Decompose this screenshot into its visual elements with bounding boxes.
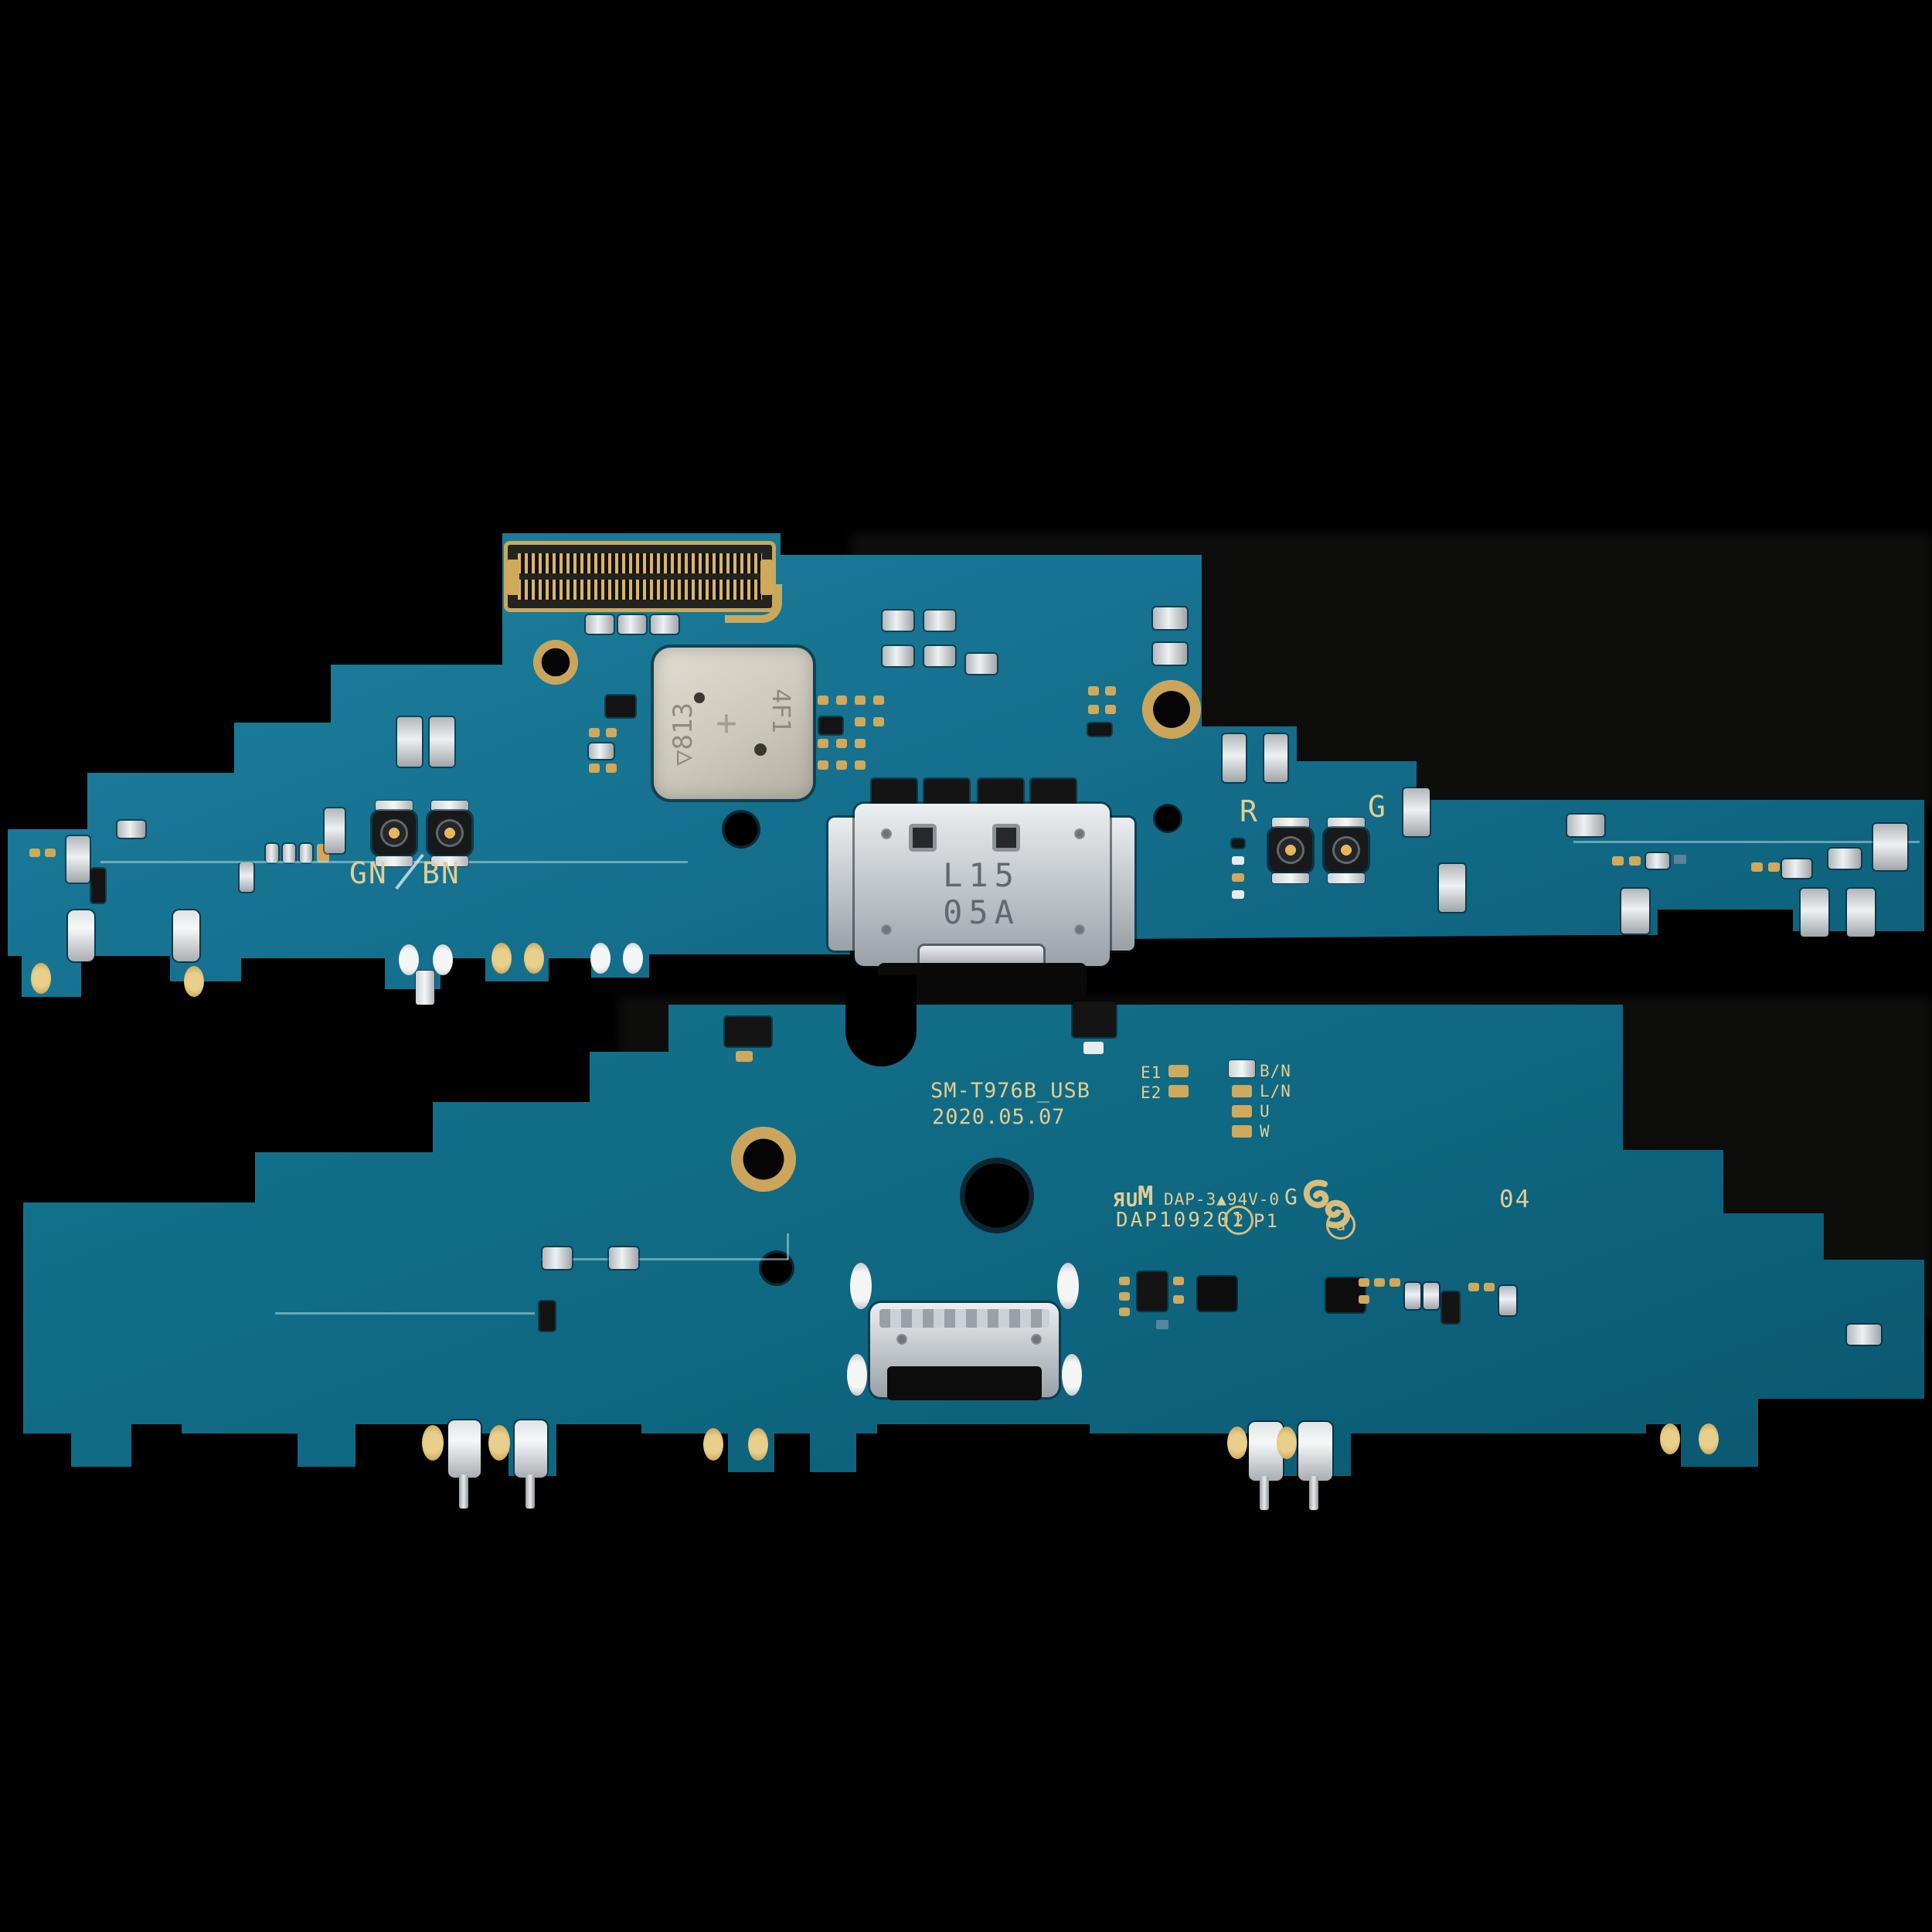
smd-resistor [1156, 1320, 1168, 1329]
edge-pad [623, 943, 643, 974]
smd-capacitor [609, 1247, 638, 1269]
solder-pad [818, 696, 828, 705]
smd-capacitor [117, 821, 145, 838]
connector-end-tab [507, 560, 519, 595]
edge-plated-pad [488, 1425, 510, 1461]
smd-capacitor [1264, 734, 1287, 782]
edge-contact [68, 910, 94, 961]
solder-pad [589, 728, 600, 737]
usb-pin-block [978, 779, 1023, 807]
test-pad [1168, 1065, 1189, 1077]
circled-2-mark: 2 [1224, 1206, 1253, 1235]
smd-capacitor [1621, 889, 1649, 934]
test-pad [1232, 1105, 1252, 1117]
solder-pad [1088, 686, 1099, 696]
smd-capacitor [430, 717, 454, 767]
smd-capacitor [883, 646, 913, 666]
usb-rivet [1074, 828, 1085, 839]
smd-ic [1442, 1292, 1459, 1323]
usb-rivet [881, 924, 892, 935]
alignment-hole [759, 1250, 794, 1286]
edge-contact [416, 971, 434, 1005]
solder-pad [818, 760, 828, 770]
smd-capacitor [966, 654, 997, 674]
contact-pin [1260, 1476, 1269, 1510]
panel-number: 04 [1499, 1185, 1531, 1213]
test-pad-dash [1232, 839, 1244, 848]
solder-pad [1484, 1283, 1495, 1291]
solder-pad [1359, 1295, 1369, 1304]
solder-pad [873, 696, 884, 705]
edge-plated-pad [31, 963, 51, 994]
solder-pad [1088, 705, 1099, 714]
edge-pad [433, 944, 453, 975]
solder-pad [855, 739, 866, 748]
usb-rivet [1074, 924, 1085, 935]
coax-clip [1272, 818, 1309, 828]
testpoint-label-ln: L/N [1260, 1082, 1291, 1100]
solder-pad [836, 696, 847, 705]
solder-pad [1751, 862, 1763, 872]
smd-capacitor [1153, 607, 1187, 629]
cert-rev: P1 [1253, 1210, 1279, 1232]
smd-capacitor [1403, 788, 1430, 836]
test-pad [1168, 1085, 1189, 1097]
test-pad-dash [1232, 873, 1244, 882]
screw-hole [1142, 680, 1201, 739]
smd-capacitor [66, 836, 90, 883]
smd-capacitor [1405, 1283, 1420, 1309]
smd-ic [1073, 1002, 1116, 1037]
smd-capacitor [1439, 864, 1465, 912]
solder-pad [1105, 686, 1116, 696]
testpoint-label-e1: E1 [1141, 1063, 1162, 1082]
test-pad-dash [1232, 856, 1244, 865]
contact-pin [526, 1475, 535, 1509]
smd-capacitor [1828, 849, 1861, 869]
smd-capacitor [1847, 889, 1875, 937]
solder-pad [873, 717, 884, 726]
solder-pad [1083, 1042, 1104, 1054]
smd-capacitor [1847, 1325, 1881, 1345]
testpoint-label-e2: E2 [1141, 1083, 1162, 1102]
smd-capacitor [543, 1247, 572, 1269]
antenna-label-g: G [1368, 790, 1387, 824]
edge-plated-pad [1227, 1427, 1247, 1459]
test-pad-dash [1232, 890, 1244, 899]
circled-a-mark: a [1326, 1210, 1355, 1240]
smd-capacitor [397, 717, 422, 767]
usb-pin-block [872, 779, 917, 807]
smd-ic [725, 1017, 771, 1046]
silkscreen-date: 2020.05.07 [932, 1105, 1066, 1129]
rubber-pad [1198, 1277, 1236, 1311]
usb-pin-block [924, 779, 969, 807]
smd-capacitor [883, 611, 913, 631]
solder-pad [1119, 1308, 1130, 1316]
gold-trace [725, 584, 782, 623]
antenna-label-bn: BN [422, 856, 461, 890]
solder-pad [1105, 705, 1116, 714]
smd-capacitor [1153, 643, 1187, 665]
edge-plated-pad [524, 943, 544, 974]
smd-capacitor [651, 615, 679, 634]
edge-plated-pad [492, 943, 512, 974]
shield-marking-center: + [708, 702, 745, 739]
solder-pad [1612, 856, 1624, 866]
coax-connector-bn [428, 811, 471, 855]
contact-pin [1309, 1476, 1318, 1510]
smd-resistor [300, 844, 312, 862]
usb-through-leg [847, 1354, 867, 1396]
solder-pad [818, 739, 828, 748]
soldered-component [1229, 1060, 1255, 1077]
silkscreen-model: SM-T976B_USB [930, 1079, 1090, 1103]
large-hole [960, 1158, 1034, 1233]
solder-pad [736, 1051, 753, 1062]
circuit-trace [541, 1258, 788, 1260]
smd-capacitor [1782, 859, 1811, 878]
smd-capacitor [1499, 1286, 1516, 1315]
smd-capacitor [589, 743, 614, 759]
coax-clip [1328, 873, 1365, 883]
shield-marking-left: ▽813 [668, 680, 696, 788]
manufacturer-logo-m: M [1138, 1181, 1153, 1212]
solder-pad [45, 849, 56, 857]
screw-hole [533, 640, 578, 685]
antenna-label-gn: GN [349, 856, 388, 890]
solder-pad [29, 849, 40, 857]
solder-pad [1768, 862, 1780, 872]
smd-ic [606, 696, 635, 717]
solder-pad [1173, 1277, 1184, 1285]
shield-dimple [694, 692, 705, 703]
testpoint-label-u: U [1260, 1102, 1270, 1121]
smd-ic [1088, 723, 1111, 736]
coax-clip [1272, 873, 1309, 883]
smd-capacitor [618, 615, 646, 634]
usb-rivet [896, 1334, 907, 1345]
usb-marking-line1: L15 [920, 856, 1043, 894]
edge-plated-pad [1277, 1427, 1297, 1459]
usb-rivet [881, 828, 892, 839]
circuit-trace [275, 1312, 535, 1315]
edge-contact [173, 910, 199, 961]
solder-pad [606, 764, 617, 773]
shield-dimple [754, 743, 767, 756]
circuit-trace [787, 1233, 789, 1260]
solder-pad [606, 728, 617, 737]
usb-solder-eye [909, 824, 937, 852]
coax-clip [376, 801, 413, 811]
edge-plated-pad [748, 1428, 768, 1461]
smd-capacitor [1873, 824, 1907, 870]
smd-capacitor [325, 808, 345, 853]
smd-capacitor [586, 615, 614, 634]
smd-resistor [266, 844, 278, 862]
solder-pad [1468, 1283, 1479, 1291]
smd-capacitor [240, 862, 253, 892]
smd-ic [1138, 1272, 1167, 1311]
usb-through-leg [1062, 1354, 1082, 1396]
usb-solder-eye [992, 824, 1020, 852]
edge-plated-pad [184, 966, 204, 997]
smd-resistor [1646, 853, 1669, 869]
circuit-trace [1573, 841, 1920, 843]
solder-pad [855, 760, 866, 770]
coax-clip [1328, 818, 1365, 828]
usb-stamp-row [879, 1309, 1049, 1328]
usb-through-leg [1057, 1263, 1079, 1309]
screw-hole [731, 1127, 796, 1192]
smd-capacitor [1567, 815, 1604, 836]
usb-rivet [1031, 1334, 1042, 1345]
testpoint-label-w: W [1260, 1122, 1270, 1141]
solder-pad [1389, 1278, 1400, 1287]
solder-pad [589, 764, 600, 773]
smd-capacitor [1801, 889, 1828, 937]
solder-pad [1119, 1292, 1130, 1301]
alignment-hole [1153, 804, 1182, 833]
edge-plated-pad [1699, 1423, 1719, 1454]
smd-ic [91, 869, 105, 903]
smd-resistor [1674, 855, 1686, 864]
usb-opening-back [887, 1366, 1042, 1400]
smd-capacitor [1423, 1283, 1439, 1309]
solder-pad [1119, 1277, 1130, 1285]
test-pad [1232, 1085, 1252, 1097]
coax-connector-r [1269, 828, 1312, 872]
smd-capacitor [1223, 734, 1246, 782]
alignment-hole [722, 810, 760, 849]
solder-pad [1173, 1295, 1184, 1304]
contact-pin [459, 1475, 468, 1509]
solder-pad [1629, 856, 1641, 866]
testpoint-label-bn: B/N [1260, 1062, 1291, 1080]
edge-plated-pad [1660, 1423, 1680, 1454]
coax-connector-g [1325, 828, 1368, 872]
smd-capacitor [924, 646, 955, 666]
usb-pin-block [1031, 779, 1076, 807]
spring-contact [515, 1420, 547, 1478]
coax-clip [431, 801, 468, 811]
spring-contact [448, 1420, 481, 1478]
shield-marking-right: 4F1 [768, 657, 796, 765]
solder-pad [855, 696, 866, 705]
usb-through-leg [850, 1263, 872, 1309]
smd-capacitor [924, 611, 955, 631]
ul-recognized-mark: ЯU [1113, 1189, 1139, 1211]
test-pad [1232, 1125, 1252, 1138]
coax-connector-gn [372, 811, 416, 855]
antenna-label-r: R [1240, 794, 1259, 828]
solder-pad [1359, 1278, 1369, 1287]
edge-plated-pad [703, 1428, 723, 1461]
smd-ic [819, 717, 842, 734]
cert-g-mark: G [1284, 1184, 1299, 1209]
solder-pad [1374, 1278, 1385, 1287]
edge-notch [845, 975, 917, 1066]
solder-pad [836, 760, 847, 770]
solder-pad [855, 717, 866, 726]
solder-pad [836, 739, 847, 748]
connector-pin-row [518, 553, 762, 573]
smd-ic [539, 1301, 555, 1331]
edge-pad [590, 943, 611, 974]
smd-resistor [283, 844, 295, 862]
usb-marking-line2: 05A [920, 893, 1043, 931]
cert-line1: DAP-3▲94V-0 [1164, 1190, 1280, 1209]
edge-plated-pad [422, 1425, 444, 1461]
spring-contact [1298, 1422, 1332, 1481]
